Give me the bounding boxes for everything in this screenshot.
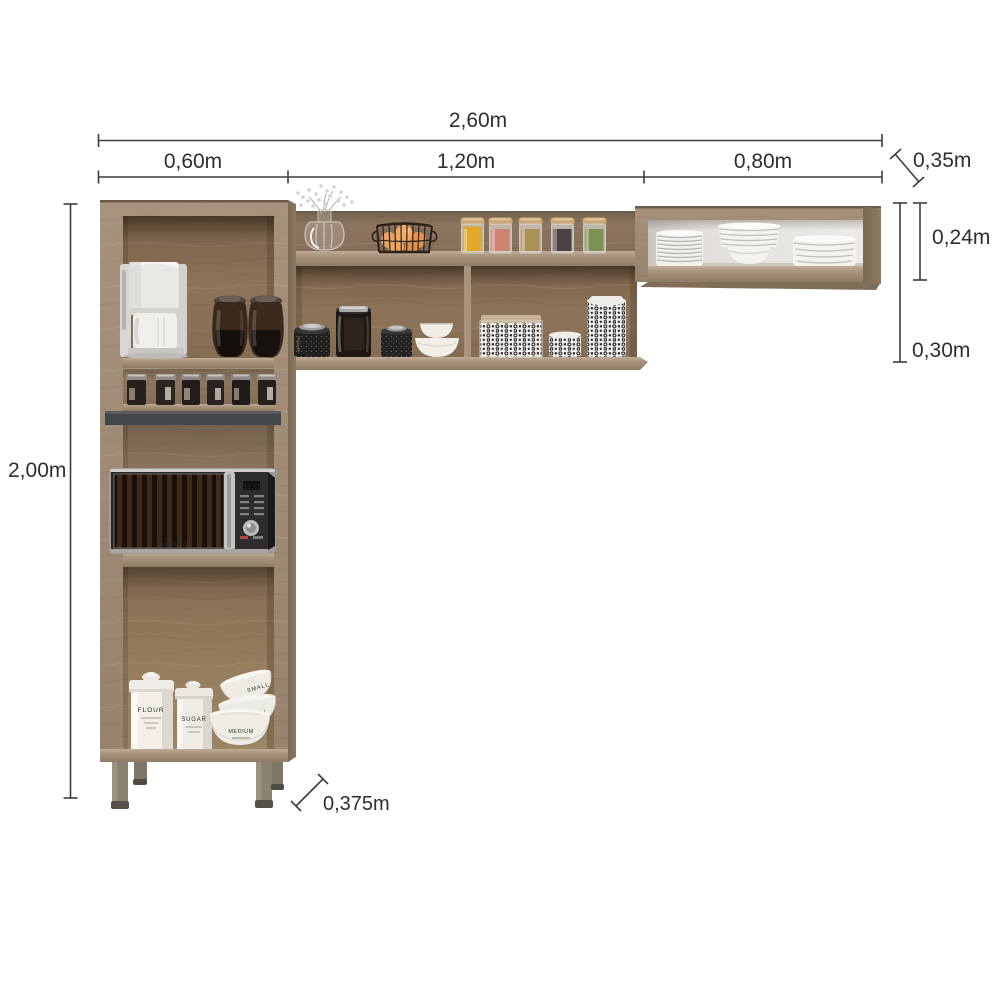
svg-text:FLOUR: FLOUR [137,707,164,714]
svg-text:0,30m: 0,30m [912,339,970,362]
svg-text:0,60m: 0,60m [164,150,222,173]
svg-text:2,00m: 2,00m [8,459,66,482]
svg-text:SAMSUNG: SAMSUNG [156,542,188,548]
svg-text:12:12: 12:12 [243,484,260,491]
svg-text:0,80m: 0,80m [734,150,792,173]
svg-text:0,35m: 0,35m [913,149,971,172]
svg-text:0,375m: 0,375m [323,793,390,815]
svg-text:MEDIUM: MEDIUM [228,729,253,735]
svg-text:0,24m: 0,24m [932,226,990,249]
svg-text:2,60m: 2,60m [449,109,507,132]
svg-text:1,20m: 1,20m [437,150,495,173]
svg-text:SUGAR: SUGAR [181,717,206,723]
